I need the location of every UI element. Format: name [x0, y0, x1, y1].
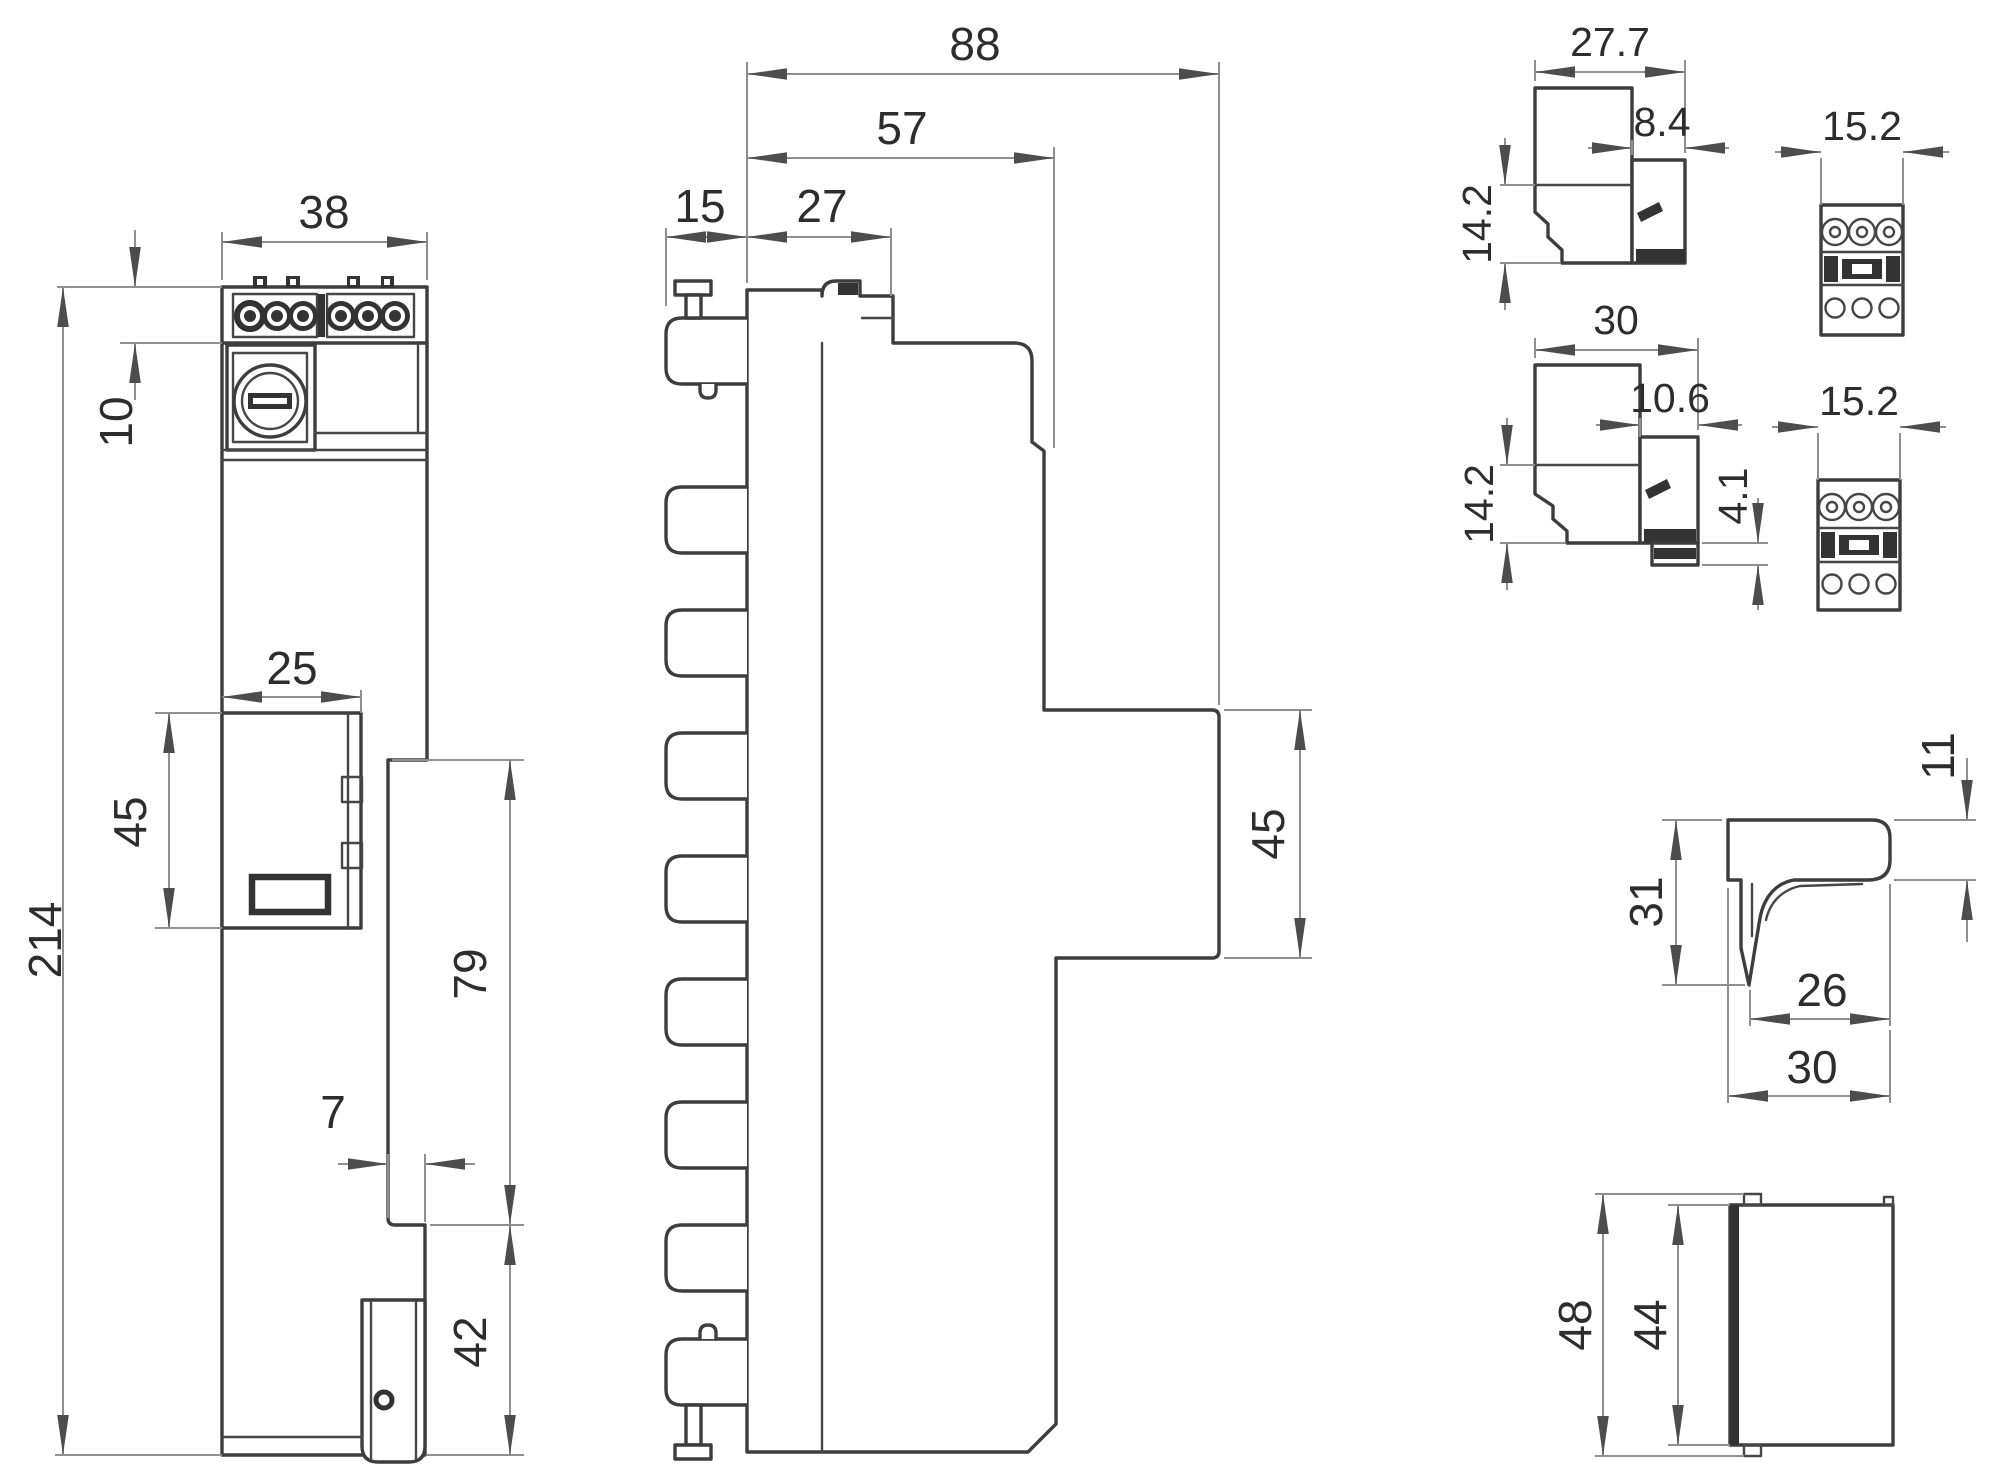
- dim-label: 11: [1912, 732, 1964, 780]
- contact-mark: [1644, 529, 1696, 543]
- dim-front-clip-height: 42: [427, 1225, 524, 1455]
- cooling-fins: [666, 318, 747, 1405]
- contact-mark: [1636, 249, 1685, 263]
- connector-detail-top: 27.7 8.4 14.2: [1454, 19, 1729, 310]
- dim-label: 42: [444, 1316, 496, 1367]
- dim-label: 45: [1242, 808, 1294, 859]
- side-top-latch-notch: [838, 283, 858, 295]
- terminal-face-bottom: 15.2: [1772, 378, 1946, 610]
- dim-label: 4.1: [1710, 468, 1756, 525]
- dim-label: 48: [1549, 1299, 1601, 1350]
- dim-label: 79: [444, 948, 496, 999]
- bracket-view: 11 31 26 30: [1620, 732, 1976, 1103]
- dim-terminal-bottom-width: 15.2: [1772, 378, 1946, 480]
- dim-front-module-height: 45: [104, 713, 222, 928]
- dim-label: 8.4: [1634, 99, 1691, 145]
- technical-drawing-sheet: 38 10 214 25 45 79: [0, 0, 2000, 1475]
- end-plate-pin: [1884, 1197, 1893, 1205]
- terminal-divider: [318, 294, 325, 337]
- dim-label: 30: [1593, 297, 1639, 343]
- plug-module: [222, 713, 362, 928]
- dim-label: 30: [1786, 1041, 1837, 1093]
- dim-label: 27.7: [1570, 19, 1650, 65]
- din-release-clip: [362, 1300, 425, 1462]
- end-plate-body: [1730, 1205, 1893, 1445]
- fin-bump-bottom: [700, 1325, 716, 1339]
- dim-front-terminal-height: 10: [57, 230, 222, 448]
- dim-label: 45: [104, 796, 156, 847]
- dim-bracket-flange: 11: [1894, 732, 1976, 942]
- dim-terminal-top-width: 15.2: [1775, 103, 1949, 205]
- dim-label: 10: [90, 396, 142, 447]
- side-body-outline: [747, 281, 1219, 1452]
- front-view: 38 10 214 25 45 79: [19, 186, 524, 1462]
- foot-contact-mark: [1654, 548, 1696, 559]
- dim-bracket-height: 31: [1620, 820, 1745, 985]
- dim-label: 88: [949, 18, 1000, 70]
- fin-bump-top: [700, 384, 716, 398]
- connector-detail-bottom: 30 10.6 4.1 14.2: [1456, 297, 1768, 610]
- dim-front-lower-right: 79: [392, 760, 524, 1225]
- dim-side-protrusion-height: 45: [1224, 710, 1312, 958]
- bracket-gusset-line: [1766, 884, 1862, 920]
- dimension-drawing: 38 10 214 25 45 79: [0, 0, 2000, 1475]
- end-plate-rail-edge: [1730, 1205, 1739, 1445]
- dim-connector-bottom-latch: 4.1: [1702, 468, 1768, 611]
- dim-front-overall-width: 38: [222, 186, 427, 280]
- dim-label: 38: [298, 186, 349, 238]
- end-plate-view: 48 44: [1549, 1194, 1893, 1456]
- dim-label: 57: [876, 102, 927, 154]
- dim-label: 10.6: [1630, 375, 1710, 421]
- rotary-switch: [227, 345, 315, 450]
- dim-label: 14.2: [1454, 184, 1500, 264]
- dim-label: 27: [796, 180, 847, 232]
- connector-profile: [1535, 365, 1640, 543]
- terminal-face-top: 15.2: [1775, 103, 1949, 335]
- dim-label: 25: [266, 642, 317, 694]
- connector-profile: [1535, 88, 1632, 263]
- dim-label: 14.2: [1456, 464, 1502, 544]
- dim-label: 31: [1620, 876, 1672, 927]
- dim-label: 15.2: [1822, 103, 1902, 149]
- dim-endplate-inner-height: 44: [1624, 1205, 1730, 1445]
- dim-label: 7: [320, 1086, 346, 1138]
- dim-label: 214: [19, 902, 71, 979]
- dim-label: 26: [1796, 964, 1847, 1016]
- dim-side-column-depth: 27: [747, 180, 891, 296]
- clip-hole: [376, 1392, 392, 1408]
- dim-label: 15.2: [1819, 378, 1899, 424]
- dim-front-overall-height: 214: [19, 287, 222, 1455]
- side-view: 88 57 15 27 45: [666, 18, 1312, 1459]
- dim-label: 44: [1624, 1299, 1676, 1350]
- dim-label: 15: [674, 180, 725, 232]
